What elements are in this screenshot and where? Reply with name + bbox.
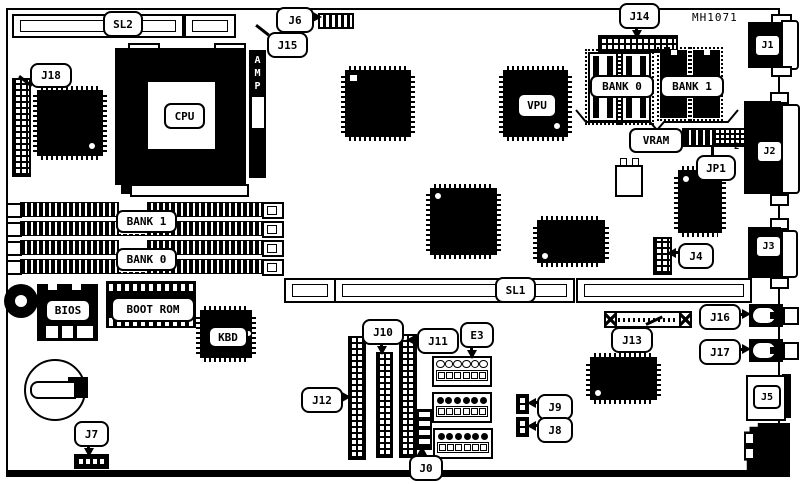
- j6-connector: [318, 13, 354, 29]
- j6-arrow: [313, 12, 322, 22]
- j1-label: J1: [754, 34, 781, 57]
- part-number: MH1071: [692, 11, 738, 24]
- slot-sl2: [12, 14, 184, 38]
- pin1-marker: [435, 193, 441, 199]
- j5-label: J5: [753, 385, 781, 409]
- simm-clip: [262, 221, 284, 238]
- slot-sl1-segment: [576, 278, 752, 303]
- boot-rom-pins: [109, 284, 193, 291]
- speaker: [4, 284, 38, 318]
- j6-label: J6: [276, 7, 314, 33]
- pin1-marker: [554, 123, 560, 129]
- cpu-label: CPU: [164, 103, 205, 129]
- jp1-connector-grid: [714, 130, 746, 145]
- boot-rom-label: BOOT ROM: [111, 297, 195, 322]
- terminal-block: [432, 392, 492, 423]
- cpu-socket-lever: [130, 184, 249, 197]
- bios-socket-slots: [44, 324, 95, 340]
- j2-shell: [781, 104, 800, 194]
- j3-label: J3: [755, 235, 782, 258]
- j2-label: J2: [756, 140, 783, 163]
- simm-clip: [6, 203, 22, 218]
- j0-label: J0: [409, 455, 443, 481]
- crystal: [615, 165, 643, 197]
- j16-jack: [749, 304, 783, 327]
- j13-connector: [604, 311, 692, 328]
- sl1-label: SL1: [495, 277, 536, 303]
- kbd-label: KBD: [208, 326, 248, 348]
- speaker-hole: [15, 295, 27, 307]
- simm-clip: [6, 241, 22, 256]
- terminal-block-e3: [432, 356, 492, 387]
- j8-label: J8: [537, 417, 573, 443]
- j7-arrow: [84, 448, 94, 457]
- simm-clip: [6, 222, 22, 237]
- j12-arrow: [342, 392, 351, 402]
- j17-jack: [749, 339, 783, 362]
- j16-label: J16: [699, 304, 741, 330]
- j10-label: J10: [362, 319, 404, 345]
- slot-sl2-segment: [184, 14, 236, 38]
- vram-label: VRAM: [629, 128, 683, 153]
- j10-arrow: [377, 346, 387, 355]
- bank1-vram-label: BANK 1: [660, 75, 724, 98]
- e3-arrow: [467, 350, 477, 359]
- bank1-simm-label: BANK 1: [116, 210, 177, 233]
- battery-clip: [30, 381, 76, 399]
- amp-label: AMP: [252, 55, 263, 94]
- simm-clip: [262, 202, 284, 219]
- j18-label: J18: [30, 63, 72, 88]
- j17-arrow: [742, 344, 751, 354]
- pin1-marker: [683, 176, 689, 182]
- j15-label: J15: [267, 32, 308, 58]
- pin1-marker: [350, 75, 357, 81]
- simm-clip: [6, 260, 22, 275]
- j11-label: J11: [417, 328, 459, 354]
- simm-clip: [262, 259, 284, 276]
- simm-clip: [262, 240, 284, 257]
- bank0-vram-label: BANK 0: [590, 75, 654, 98]
- terminal-block: [433, 428, 493, 459]
- j13-label: J13: [611, 327, 653, 353]
- jp1-label: JP1: [696, 155, 736, 181]
- jp1-connector-filled: [684, 130, 714, 145]
- j0-header: [417, 409, 432, 450]
- j16-arrow: [742, 309, 751, 319]
- j10-header: [376, 352, 393, 458]
- j16-jack-tab: [783, 307, 799, 325]
- board-bottom-edge: [6, 470, 790, 477]
- vpu-label: VPU: [517, 93, 557, 118]
- j1-shell: [781, 20, 799, 70]
- j14-arrow: [632, 30, 642, 39]
- pin1-marker: [595, 390, 601, 396]
- j7-label: J7: [74, 421, 109, 447]
- e3-label: E3: [460, 322, 494, 348]
- j12-label: J12: [301, 387, 343, 413]
- bios-label: BIOS: [45, 299, 91, 322]
- j17-label: J17: [699, 339, 741, 365]
- pin1-marker: [542, 253, 548, 259]
- j18-header: [12, 78, 31, 177]
- jp1-pin2-label: 2: [734, 142, 739, 152]
- j4-label: J4: [678, 243, 714, 269]
- slot-sl1: [334, 278, 575, 303]
- sl2-label: SL2: [103, 11, 143, 37]
- pin1-marker: [89, 143, 95, 149]
- j11-header: [399, 334, 417, 458]
- amp-keyway: [252, 97, 264, 128]
- power-connector: [744, 423, 790, 470]
- slot-short: [284, 278, 336, 303]
- j3-shell: [781, 230, 798, 278]
- jp1-pointer: [711, 145, 714, 155]
- j14-label: J14: [619, 3, 660, 29]
- bank0-simm-label: BANK 0: [116, 248, 177, 271]
- motherboard-diagram: { "part_number": "MH1071", "slots": { "s…: [0, 0, 800, 484]
- j17-jack-tab: [783, 342, 799, 360]
